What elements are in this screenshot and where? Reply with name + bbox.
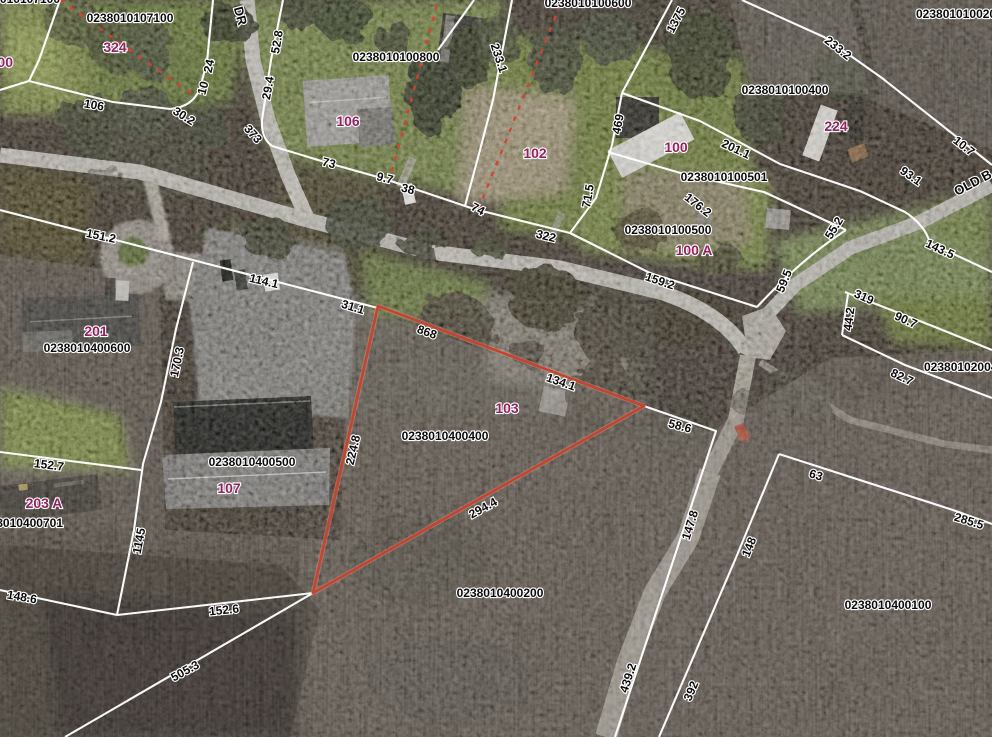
svg-text:0238010400100: 0238010400100	[845, 598, 932, 612]
svg-text:0238010400600: 0238010400600	[44, 341, 131, 355]
svg-text:0238010400400: 0238010400400	[402, 429, 489, 443]
svg-text:0238010100400: 0238010100400	[742, 83, 829, 97]
svg-text:224: 224	[824, 118, 848, 134]
svg-text:0238010107100: 0238010107100	[87, 11, 174, 25]
svg-text:0238010100200: 0238010100200	[916, 7, 992, 21]
svg-text:0238010100501: 0238010100501	[681, 170, 768, 184]
svg-text:0238010200400: 0238010200400	[924, 360, 992, 374]
svg-text:201: 201	[84, 323, 108, 339]
svg-text:102: 102	[523, 145, 547, 161]
svg-text:300: 300	[0, 54, 13, 70]
svg-text:0238010400500: 0238010400500	[209, 455, 296, 469]
svg-text:0238010100500: 0238010100500	[625, 223, 712, 237]
svg-text:324: 324	[103, 39, 127, 55]
svg-text:103: 103	[495, 400, 519, 416]
svg-text:106: 106	[336, 113, 360, 129]
svg-text:0238010400200: 0238010400200	[457, 586, 544, 600]
svg-text:0238010107100: 0238010107100	[0, 0, 60, 6]
svg-text:107: 107	[217, 480, 241, 496]
svg-text:0238010400701: 0238010400701	[0, 516, 63, 530]
svg-text:100: 100	[664, 139, 688, 155]
svg-text:0238010100800: 0238010100800	[353, 50, 440, 64]
svg-text:203 A: 203 A	[26, 495, 63, 511]
svg-text:0238010100600: 0238010100600	[545, 0, 632, 10]
svg-text:100 A: 100 A	[676, 242, 713, 258]
